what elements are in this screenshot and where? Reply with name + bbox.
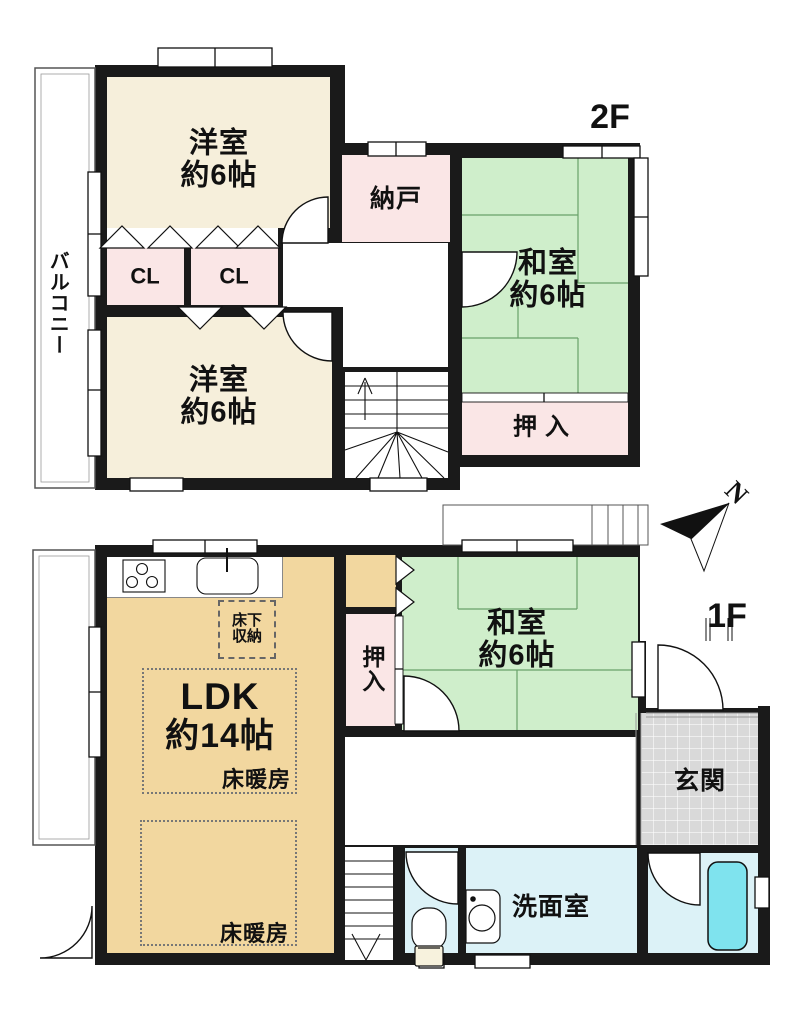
room-2f-western-bottom-label: 洋室 約6帖 (180, 365, 257, 430)
room-2f-nando-label: 納戸 (370, 185, 422, 213)
room-1f-genkan-label: 玄関 (674, 767, 726, 795)
room-2f-japanese-label: 和室 約6帖 (509, 248, 586, 313)
room-1f-toilet (405, 848, 458, 953)
room-2f-oshiire-label: 押入 (513, 415, 577, 442)
hallway-1f (345, 737, 636, 845)
room-2f-western-top-label: 洋室 約6帖 (180, 128, 257, 193)
floor-heating-label-upper: 床暖房 (222, 762, 291, 794)
corridor-2f-b (343, 243, 448, 367)
balcony-label: バルコニー (46, 251, 68, 356)
canopy-outline (443, 505, 648, 545)
floor1-label: 1F (707, 597, 747, 635)
underfloor-storage-box: 床下 収納 (218, 600, 276, 659)
kitchen-counter (107, 557, 283, 598)
terrace-outline (33, 550, 95, 845)
room-1f-japanese-label: 和室 約6帖 (478, 608, 555, 673)
floor-heating-label-lower: 床暖房 (220, 916, 289, 948)
cl-door-band (107, 228, 278, 248)
room-1f-ldk-nook (346, 555, 396, 607)
room-1f-oshiire-label: 押入 (358, 645, 384, 693)
floor-plan-canvas: 床下 収納 床暖房 床暖房 (0, 0, 804, 1024)
stairs-2f (345, 372, 448, 478)
compass-icon (660, 503, 729, 571)
room-1f-washroom-label: 洗面室 (512, 893, 590, 921)
cl-left-label: CL (130, 265, 159, 290)
room-1f-bath (648, 853, 758, 953)
cl-right-label: CL (219, 265, 248, 290)
underfloor-storage-label: 床下 収納 (232, 613, 262, 647)
floor-heating-box-lower: 床暖房 (140, 820, 297, 946)
compass-north-label: N (719, 475, 755, 511)
stairs-1f (345, 847, 393, 960)
entrance-porch (646, 641, 758, 708)
floor2-label: 2F (590, 98, 630, 136)
room-1f-ldk-label: LDK 約14帖 (165, 676, 275, 756)
